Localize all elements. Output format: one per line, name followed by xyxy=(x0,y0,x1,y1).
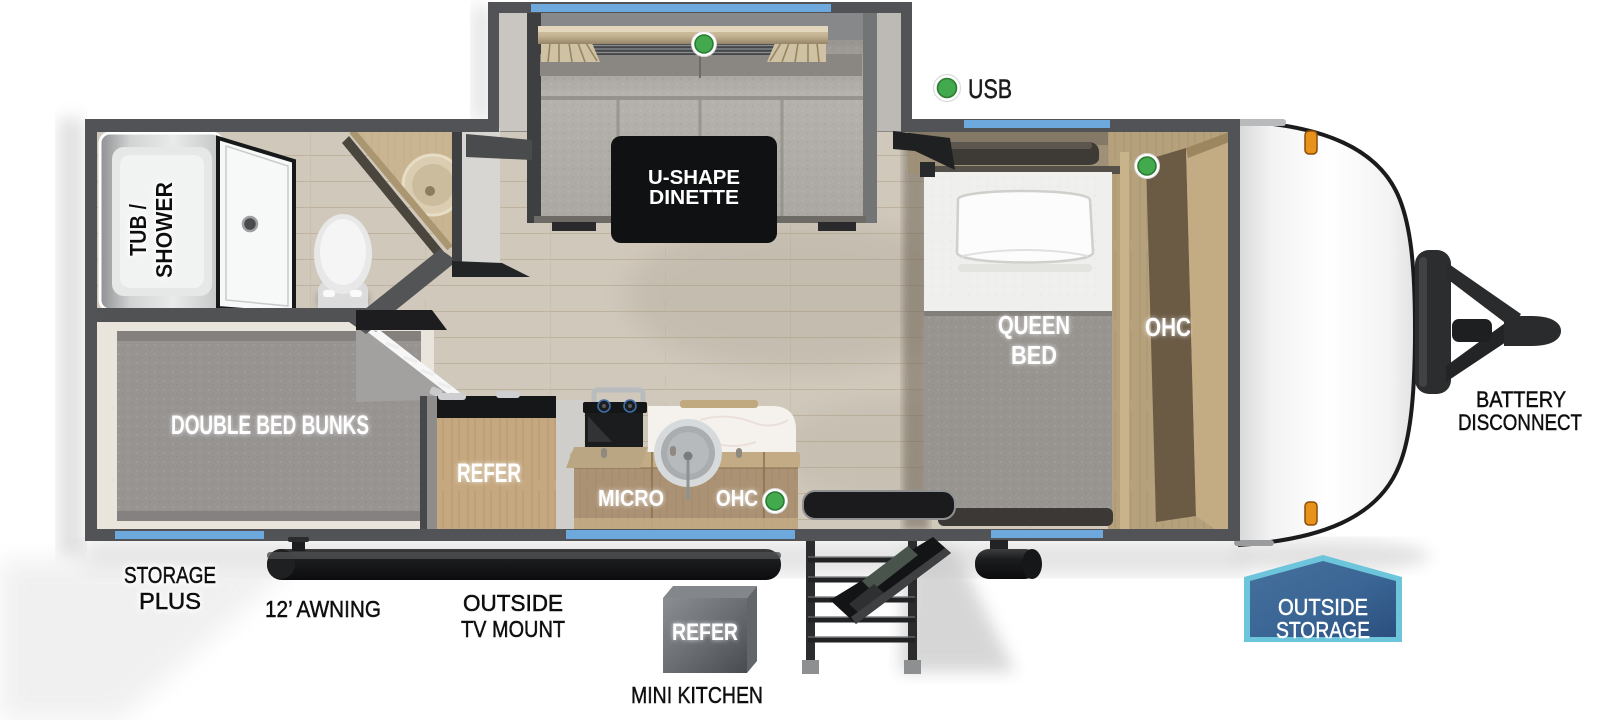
svg-text:MICRO: MICRO xyxy=(598,485,664,511)
svg-text:QUEEN: QUEEN xyxy=(998,310,1070,340)
svg-text:STORAGE: STORAGE xyxy=(1276,617,1370,643)
svg-text:USB: USB xyxy=(968,74,1012,104)
svg-text:REFER: REFER xyxy=(672,619,738,646)
svg-text:TUB /: TUB / xyxy=(125,203,151,256)
svg-text:DINETTE: DINETTE xyxy=(649,187,739,209)
svg-text:OUTSIDE: OUTSIDE xyxy=(463,590,563,616)
svg-text:OHC: OHC xyxy=(716,485,758,511)
svg-text:STORAGE: STORAGE xyxy=(124,562,216,588)
svg-text:OHC: OHC xyxy=(1145,312,1191,342)
svg-text:PLUS: PLUS xyxy=(139,588,201,614)
svg-text:BED: BED xyxy=(1011,340,1057,370)
svg-text:SHOWER: SHOWER xyxy=(151,182,177,278)
svg-text:DOUBLE BED BUNKS: DOUBLE BED BUNKS xyxy=(171,410,369,440)
svg-text:TV MOUNT: TV MOUNT xyxy=(461,616,565,642)
svg-text:12’ AWNING: 12’ AWNING xyxy=(265,596,381,622)
svg-text:DISCONNECT: DISCONNECT xyxy=(1458,410,1582,435)
svg-text:BATTERY: BATTERY xyxy=(1476,387,1566,412)
svg-text:REFER: REFER xyxy=(457,458,521,488)
svg-text:MINI KITCHEN: MINI KITCHEN xyxy=(631,682,763,708)
svg-text:U-SHAPE: U-SHAPE xyxy=(648,167,740,189)
